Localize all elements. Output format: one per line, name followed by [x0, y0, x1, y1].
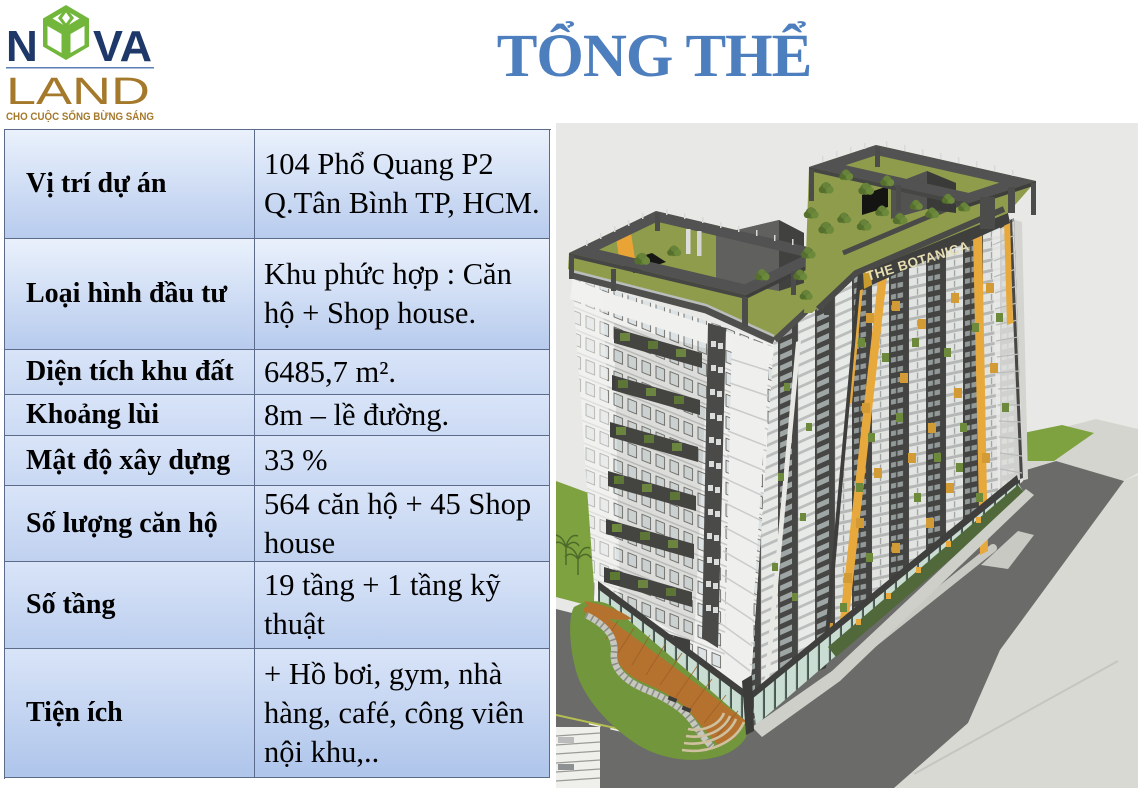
svg-text:LAND: LAND	[6, 71, 150, 113]
svg-text:CHO CUỘC SỐNG BỪNG SÁNG: CHO CUỘC SỐNG BỪNG SÁNG	[6, 109, 154, 123]
svg-text:N: N	[6, 22, 38, 71]
svg-text:VA: VA	[93, 22, 152, 71]
